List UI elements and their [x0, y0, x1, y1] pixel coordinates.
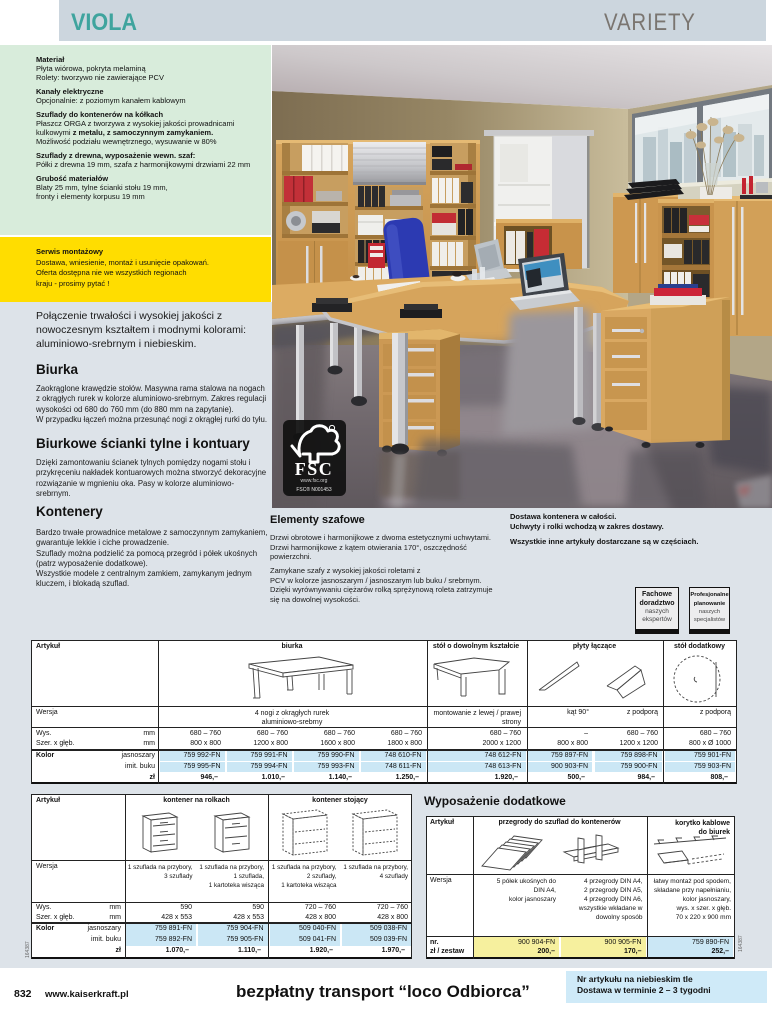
- svg-text:www.fsc.org: www.fsc.org: [301, 478, 328, 484]
- svg-text:FSC: FSC: [295, 459, 334, 479]
- svg-text:FSC® N001453: FSC® N001453: [296, 486, 332, 493]
